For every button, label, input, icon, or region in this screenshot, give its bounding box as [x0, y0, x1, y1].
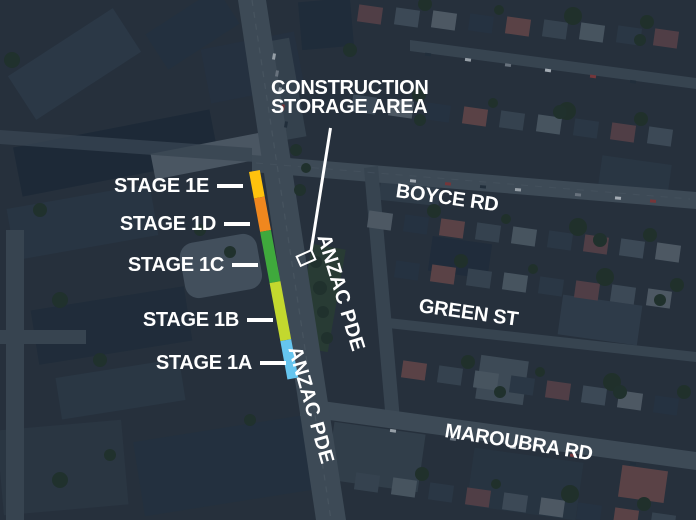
stage-1d-callout: STAGE 1D [120, 212, 250, 236]
stage-1b-callout: STAGE 1B [143, 308, 273, 332]
stage-1a-label: STAGE 1A [156, 352, 252, 375]
stage-1c-callout: STAGE 1C [128, 253, 258, 277]
construction-stages-map: CONSTRUCTION STORAGE AREA STAGE 1E STAGE… [0, 0, 696, 520]
stage-1d-label: STAGE 1D [120, 213, 216, 236]
stage-1c-label: STAGE 1C [128, 254, 224, 277]
construction-storage-area-label: CONSTRUCTION STORAGE AREA [271, 79, 429, 117]
stage-1a-callout: STAGE 1A [156, 351, 286, 375]
stage-1d-tick [224, 222, 250, 226]
construction-storage-area-line2: STORAGE AREA [271, 98, 429, 117]
stage-1a-tick [260, 361, 286, 365]
stage-1e-label: STAGE 1E [114, 175, 209, 198]
stage-1e-tick [217, 184, 243, 188]
stage-1b-label: STAGE 1B [143, 309, 239, 332]
stage-1c-tick [232, 263, 258, 267]
stage-1b-tick [247, 318, 273, 322]
stage-1e-callout: STAGE 1E [114, 174, 243, 198]
